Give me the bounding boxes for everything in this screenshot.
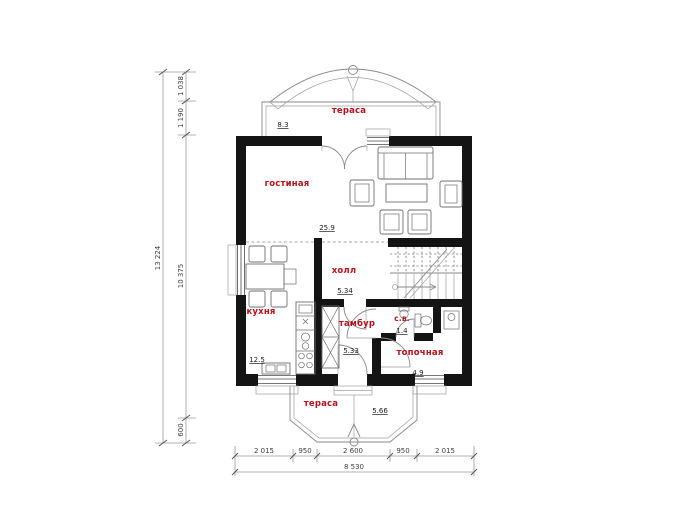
kitchen-base-unit (262, 363, 290, 374)
tambour-label: тамбур (339, 318, 375, 329)
dim-left-part-4: 600 (177, 423, 185, 436)
toilet (415, 314, 432, 327)
terrace-top-axis-marker (347, 66, 359, 103)
interior-walls (314, 238, 462, 386)
dim-bottom-total: 8 530 (344, 463, 364, 471)
kitchen-counter (296, 302, 315, 374)
staircase (390, 247, 462, 299)
living-area: 25.9 (319, 224, 335, 232)
dim-bottom-part-5: 2 015 (435, 447, 455, 455)
dim-bottom-part-3: 2 600 (343, 447, 363, 455)
dining-table (246, 246, 296, 307)
boiler-area: 4.9 (412, 369, 423, 377)
terrace-top-area: 8.3 (277, 121, 288, 129)
dim-left-part-2: 1 190 (177, 108, 185, 128)
dimension-bottom: 2 015 950 2 600 950 2 015 8 530 (232, 446, 477, 476)
chair-bottom-left (380, 210, 403, 234)
dim-bottom-part-2: 950 (298, 447, 311, 455)
kitchen-area: 12.5 (249, 356, 265, 364)
armchair-left (350, 180, 374, 206)
living-label: гостиная (265, 179, 310, 189)
terrace-top-outline (262, 69, 440, 136)
terrace-bottom-label: тераса (304, 399, 339, 409)
boiler-label: топочная (397, 348, 444, 358)
wc-label: с.в. (394, 314, 410, 323)
terrace-top-label: тераса (332, 106, 367, 116)
terrace-bottom-area: 5.66 (372, 407, 388, 415)
window-top (366, 129, 390, 145)
kitchen-label: кухня (246, 307, 275, 317)
dimension-left: 13 224 1 038 1 190 10 375 600 (154, 69, 196, 446)
entrance-step (334, 386, 372, 395)
dim-bottom-part-1: 2 015 (254, 447, 274, 455)
window-kitchen (256, 376, 298, 395)
window-boiler (413, 376, 446, 395)
terrace-bottom-outline (290, 386, 417, 442)
tambour-area: 5.33 (343, 347, 359, 355)
dim-left-part-1: 1 038 (177, 76, 185, 96)
hall-area: 5.34 (337, 287, 353, 295)
floor-plan-drawing: тераса 8.3 гостиная 25.9 холл 5.34 кухня… (0, 0, 700, 525)
dim-left-total: 13 224 (154, 245, 162, 270)
wardrobe (322, 306, 339, 368)
hall-label: холл (332, 266, 357, 276)
window-left (228, 245, 245, 295)
coffee-table (386, 184, 427, 202)
chair-bottom-right (408, 210, 431, 234)
dim-left-part-3: 10 375 (177, 264, 185, 289)
wc-area: 1.4 (396, 327, 408, 335)
french-door-living (322, 146, 367, 169)
floor-plan-canvas: тераса 8.3 гостиная 25.9 холл 5.34 кухня… (0, 0, 700, 525)
sofa (378, 147, 433, 179)
armchair-right (440, 181, 462, 207)
dim-bottom-part-4: 950 (396, 447, 409, 455)
boiler-unit (444, 311, 459, 329)
